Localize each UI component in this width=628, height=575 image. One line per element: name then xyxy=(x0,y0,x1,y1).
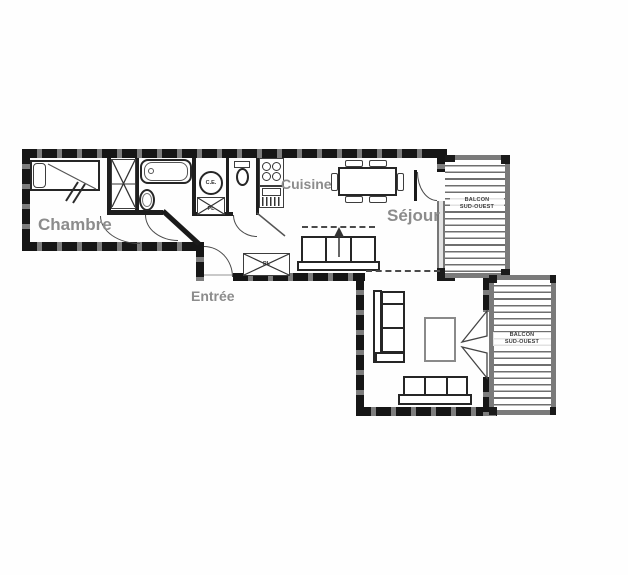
balcony-bottom-label-line1: BALCON xyxy=(510,332,535,338)
chair xyxy=(331,173,338,191)
balcony-bottom-label-line2: SUD-OUEST xyxy=(505,339,539,345)
sofa-divider xyxy=(446,376,448,396)
stove-burner xyxy=(262,162,271,171)
room-opening-dashed xyxy=(366,270,440,272)
door-arc-balcony xyxy=(417,172,437,201)
wall-top xyxy=(22,149,447,158)
room-label-entree: Entrée xyxy=(191,288,235,304)
sofa-divider xyxy=(325,236,327,263)
bathtub-drain xyxy=(148,168,154,174)
balcony-top-label-line2: SUD-OUEST xyxy=(460,204,494,210)
chair xyxy=(369,160,387,167)
bathroom-sink-inner xyxy=(142,193,152,207)
floor-plan: C.E. PL BALCON SUD-OUEST xyxy=(0,0,628,575)
wall-entree-step xyxy=(196,242,204,281)
closet-label: PL xyxy=(262,261,271,267)
storage-closet-entree-label-box: PL xyxy=(243,258,290,270)
closet-label: PL xyxy=(206,206,215,212)
partition-heater-wc xyxy=(226,158,229,215)
balcony-corner-block xyxy=(445,155,455,162)
balcony-top-label-line1: BALCON xyxy=(465,197,490,203)
chair xyxy=(345,196,363,203)
wall-lower-bottom xyxy=(356,407,497,416)
stove-burner xyxy=(272,172,281,181)
room-label-cuisine: Cuisine xyxy=(281,176,332,192)
balcony-top xyxy=(445,155,510,278)
door-arc-entry xyxy=(204,246,233,277)
wall-left xyxy=(22,149,30,251)
french-door-leaf xyxy=(462,311,487,342)
stove-burner xyxy=(262,172,271,181)
sofa-divider xyxy=(350,236,352,263)
toilet-bowl xyxy=(236,168,249,186)
wall-chambre-bottom xyxy=(22,242,204,251)
sofa-bed-seat xyxy=(301,236,376,263)
sofa-divider xyxy=(381,327,405,329)
balcony-corner-block xyxy=(550,275,556,283)
dining-table xyxy=(338,167,397,196)
water-heater-label: C.E. xyxy=(206,180,217,186)
chair xyxy=(397,173,404,191)
balcony-top-label: BALCON SUD-OUEST xyxy=(450,197,504,211)
coffee-table xyxy=(424,317,456,362)
french-door-leaf xyxy=(462,347,487,378)
chair xyxy=(369,196,387,203)
bed-pillow xyxy=(33,163,46,188)
balcony-corner-block xyxy=(489,407,497,415)
balcony-hatch xyxy=(445,160,505,273)
room-label-sejour: Séjour xyxy=(387,206,440,226)
kitchen-drainboard xyxy=(262,197,281,206)
balcony-corner-block xyxy=(489,275,497,283)
door-leaf-balcony xyxy=(414,170,417,201)
storage-closet-bathroom-label-box: PL xyxy=(197,203,225,215)
wall-lower-left xyxy=(356,275,364,416)
water-heater: C.E. xyxy=(199,171,223,195)
stove-burner xyxy=(272,162,281,171)
chair xyxy=(345,160,363,167)
sofa-bed-open-outline xyxy=(302,226,375,228)
sofa-divider xyxy=(381,303,405,305)
sofa-horizontal-seat xyxy=(403,376,468,396)
balcony-corner-block xyxy=(501,155,510,164)
kitchen-sink xyxy=(262,188,281,196)
wardrobe-closet xyxy=(111,159,136,209)
door-arc-wc xyxy=(233,215,257,237)
toilet-tank xyxy=(234,161,250,168)
sofa-vertical-seat xyxy=(381,291,405,353)
sofa-divider xyxy=(424,376,426,396)
sofa-armrest xyxy=(375,352,405,363)
balcony-bottom-label: BALCON SUD-OUEST xyxy=(493,332,551,346)
room-label-chambre: Chambre xyxy=(38,215,112,235)
sofa-horizontal-back xyxy=(398,394,472,405)
balcony-corner-block xyxy=(550,407,556,415)
kitchen-diagonal-line xyxy=(257,213,285,236)
door-arc-bathroom xyxy=(145,215,178,241)
partition-bath-heater xyxy=(192,158,196,215)
wall-sejour-right-upper xyxy=(437,149,445,172)
